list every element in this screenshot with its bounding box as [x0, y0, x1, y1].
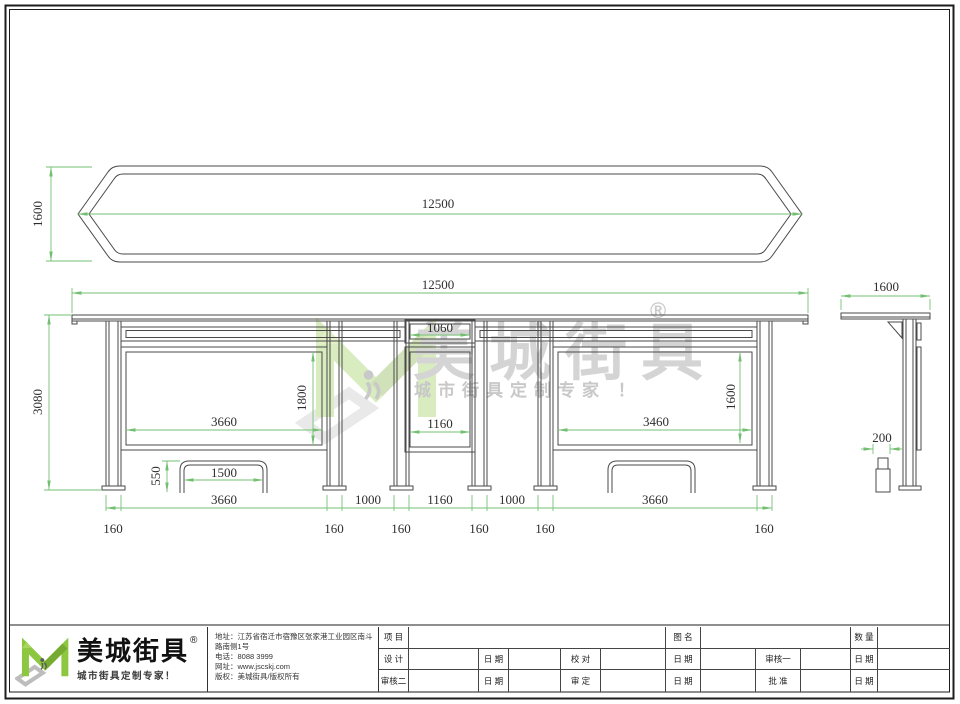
registered-trademark-icon: ®: [190, 636, 197, 646]
company-phone: 电话：8088 3999: [215, 652, 378, 662]
dim-elevation-length: 12500: [422, 277, 455, 292]
side-view: [841, 313, 930, 492]
company-logo: 美城街具 ® 城市街具定制专家！: [9, 627, 207, 692]
dim-sign-panel-width: 1160: [427, 416, 453, 431]
field-date6-value[interactable]: [878, 670, 950, 692]
dim-column-1-width: 160: [103, 521, 123, 536]
company-address: 地址：江苏省宿迁市宿豫区张家港工业园区南斗路南侧1号: [215, 632, 378, 652]
field-date4-label: 日 期: [479, 670, 509, 692]
company-tagline: 城市街具定制专家！: [77, 668, 197, 682]
field-date2-label: 日 期: [666, 649, 701, 671]
field-review1-value[interactable]: [801, 649, 851, 671]
field-date6-label: 日 期: [851, 670, 878, 692]
dim-right-panel-height: 1600: [723, 384, 738, 410]
field-project-label: 项 目: [379, 627, 409, 649]
dim-column-4-width: 160: [469, 521, 489, 536]
dim-topview-depth: 1600: [30, 201, 45, 227]
field-date5-value[interactable]: [701, 670, 756, 692]
dim-left-panel-height: 1800: [294, 385, 309, 411]
field-approve-check-label: 审 定: [561, 670, 601, 692]
dim-bench-width: 1500: [211, 465, 237, 480]
field-approve-value[interactable]: [801, 670, 851, 692]
field-proofread-label: 校 对: [561, 649, 601, 671]
header-band-left: [121, 327, 405, 341]
title-block-table: 项 目 图 名 数 量 设 计 日 期 校 对 日 期 审核一 日 期 审核二 …: [378, 627, 950, 692]
dim-bin-width: 200: [872, 430, 892, 445]
dim-sideview-depth: 1600: [873, 279, 899, 294]
dim-column-6-width: 160: [754, 521, 774, 536]
field-date5-label: 日 期: [666, 670, 701, 692]
dim-left-panel-width: 3660: [211, 414, 237, 429]
dim-sign-bay: 1160: [427, 492, 453, 507]
drawing-sheet: 美城街具 ® 城市街具定制专家 ！: [0, 0, 960, 704]
field-date3-label: 日 期: [851, 649, 878, 671]
dim-column-2-width: 160: [324, 521, 344, 536]
bench-right: [608, 461, 695, 493]
field-design-value[interactable]: [409, 649, 479, 671]
dim-column-3-width: 160: [391, 521, 411, 536]
watermark-brand: 美城街具: [413, 319, 717, 388]
dim-bay-left: 3660: [211, 492, 237, 507]
dim-overall-height: 3080: [30, 389, 45, 415]
field-date3-value[interactable]: [878, 649, 950, 671]
company-info: 地址：江苏省宿迁市宿豫区张家港工业园区南斗路南侧1号 电话：8088 3999 …: [207, 627, 378, 692]
dim-gap-1: 1000: [355, 492, 381, 507]
field-drawing-name-value[interactable]: [701, 627, 851, 649]
dim-topview-length: 12500: [422, 196, 455, 211]
cad-drawing: 美城街具 ® 城市街具定制专家 ！: [0, 0, 960, 704]
field-project-value[interactable]: [409, 627, 666, 649]
title-block: 美城街具 ® 城市街具定制专家！ 地址：江苏省宿迁市宿豫区张家港工业园区南斗路南…: [9, 627, 950, 692]
field-design-label: 设 计: [379, 649, 409, 671]
field-review2-value[interactable]: [409, 670, 479, 692]
company-logo-icon: [15, 631, 73, 689]
company-copyright: 版权：美城街具/版权所有: [215, 672, 378, 682]
field-approve-label: 批 准: [756, 670, 801, 692]
dim-column-5-width: 160: [535, 521, 555, 536]
field-quantity-value[interactable]: [878, 627, 950, 649]
dim-gap-2: 1000: [499, 492, 525, 507]
field-review1-label: 审核一: [756, 649, 801, 671]
field-review2-label: 审核二: [379, 670, 409, 692]
watermark-tagline: 城市街具定制专家 ！: [414, 380, 642, 400]
field-proofread-value[interactable]: [601, 649, 666, 671]
panel-side-profile: [917, 347, 921, 450]
dim-bench-height: 550: [148, 466, 163, 486]
field-date4-value[interactable]: [509, 670, 561, 692]
field-quantity-label: 数 量: [851, 627, 878, 649]
column-1: [102, 321, 125, 490]
dim-bay-right: 3660: [642, 492, 668, 507]
field-date1-value[interactable]: [509, 649, 561, 671]
field-drawing-name-label: 图 名: [666, 627, 701, 649]
field-date1-label: 日 期: [479, 649, 509, 671]
company-brand: 美城街具: [77, 638, 189, 664]
dim-right-panel-width: 3460: [643, 414, 669, 429]
column-6: [753, 321, 776, 490]
field-approve-check-value[interactable]: [601, 670, 666, 692]
field-date2-value[interactable]: [701, 649, 756, 671]
trash-bin: [876, 458, 890, 492]
company-website: 网址：www.jscskj.com: [215, 662, 378, 672]
dim-sign-header-width: 1060: [427, 320, 453, 335]
